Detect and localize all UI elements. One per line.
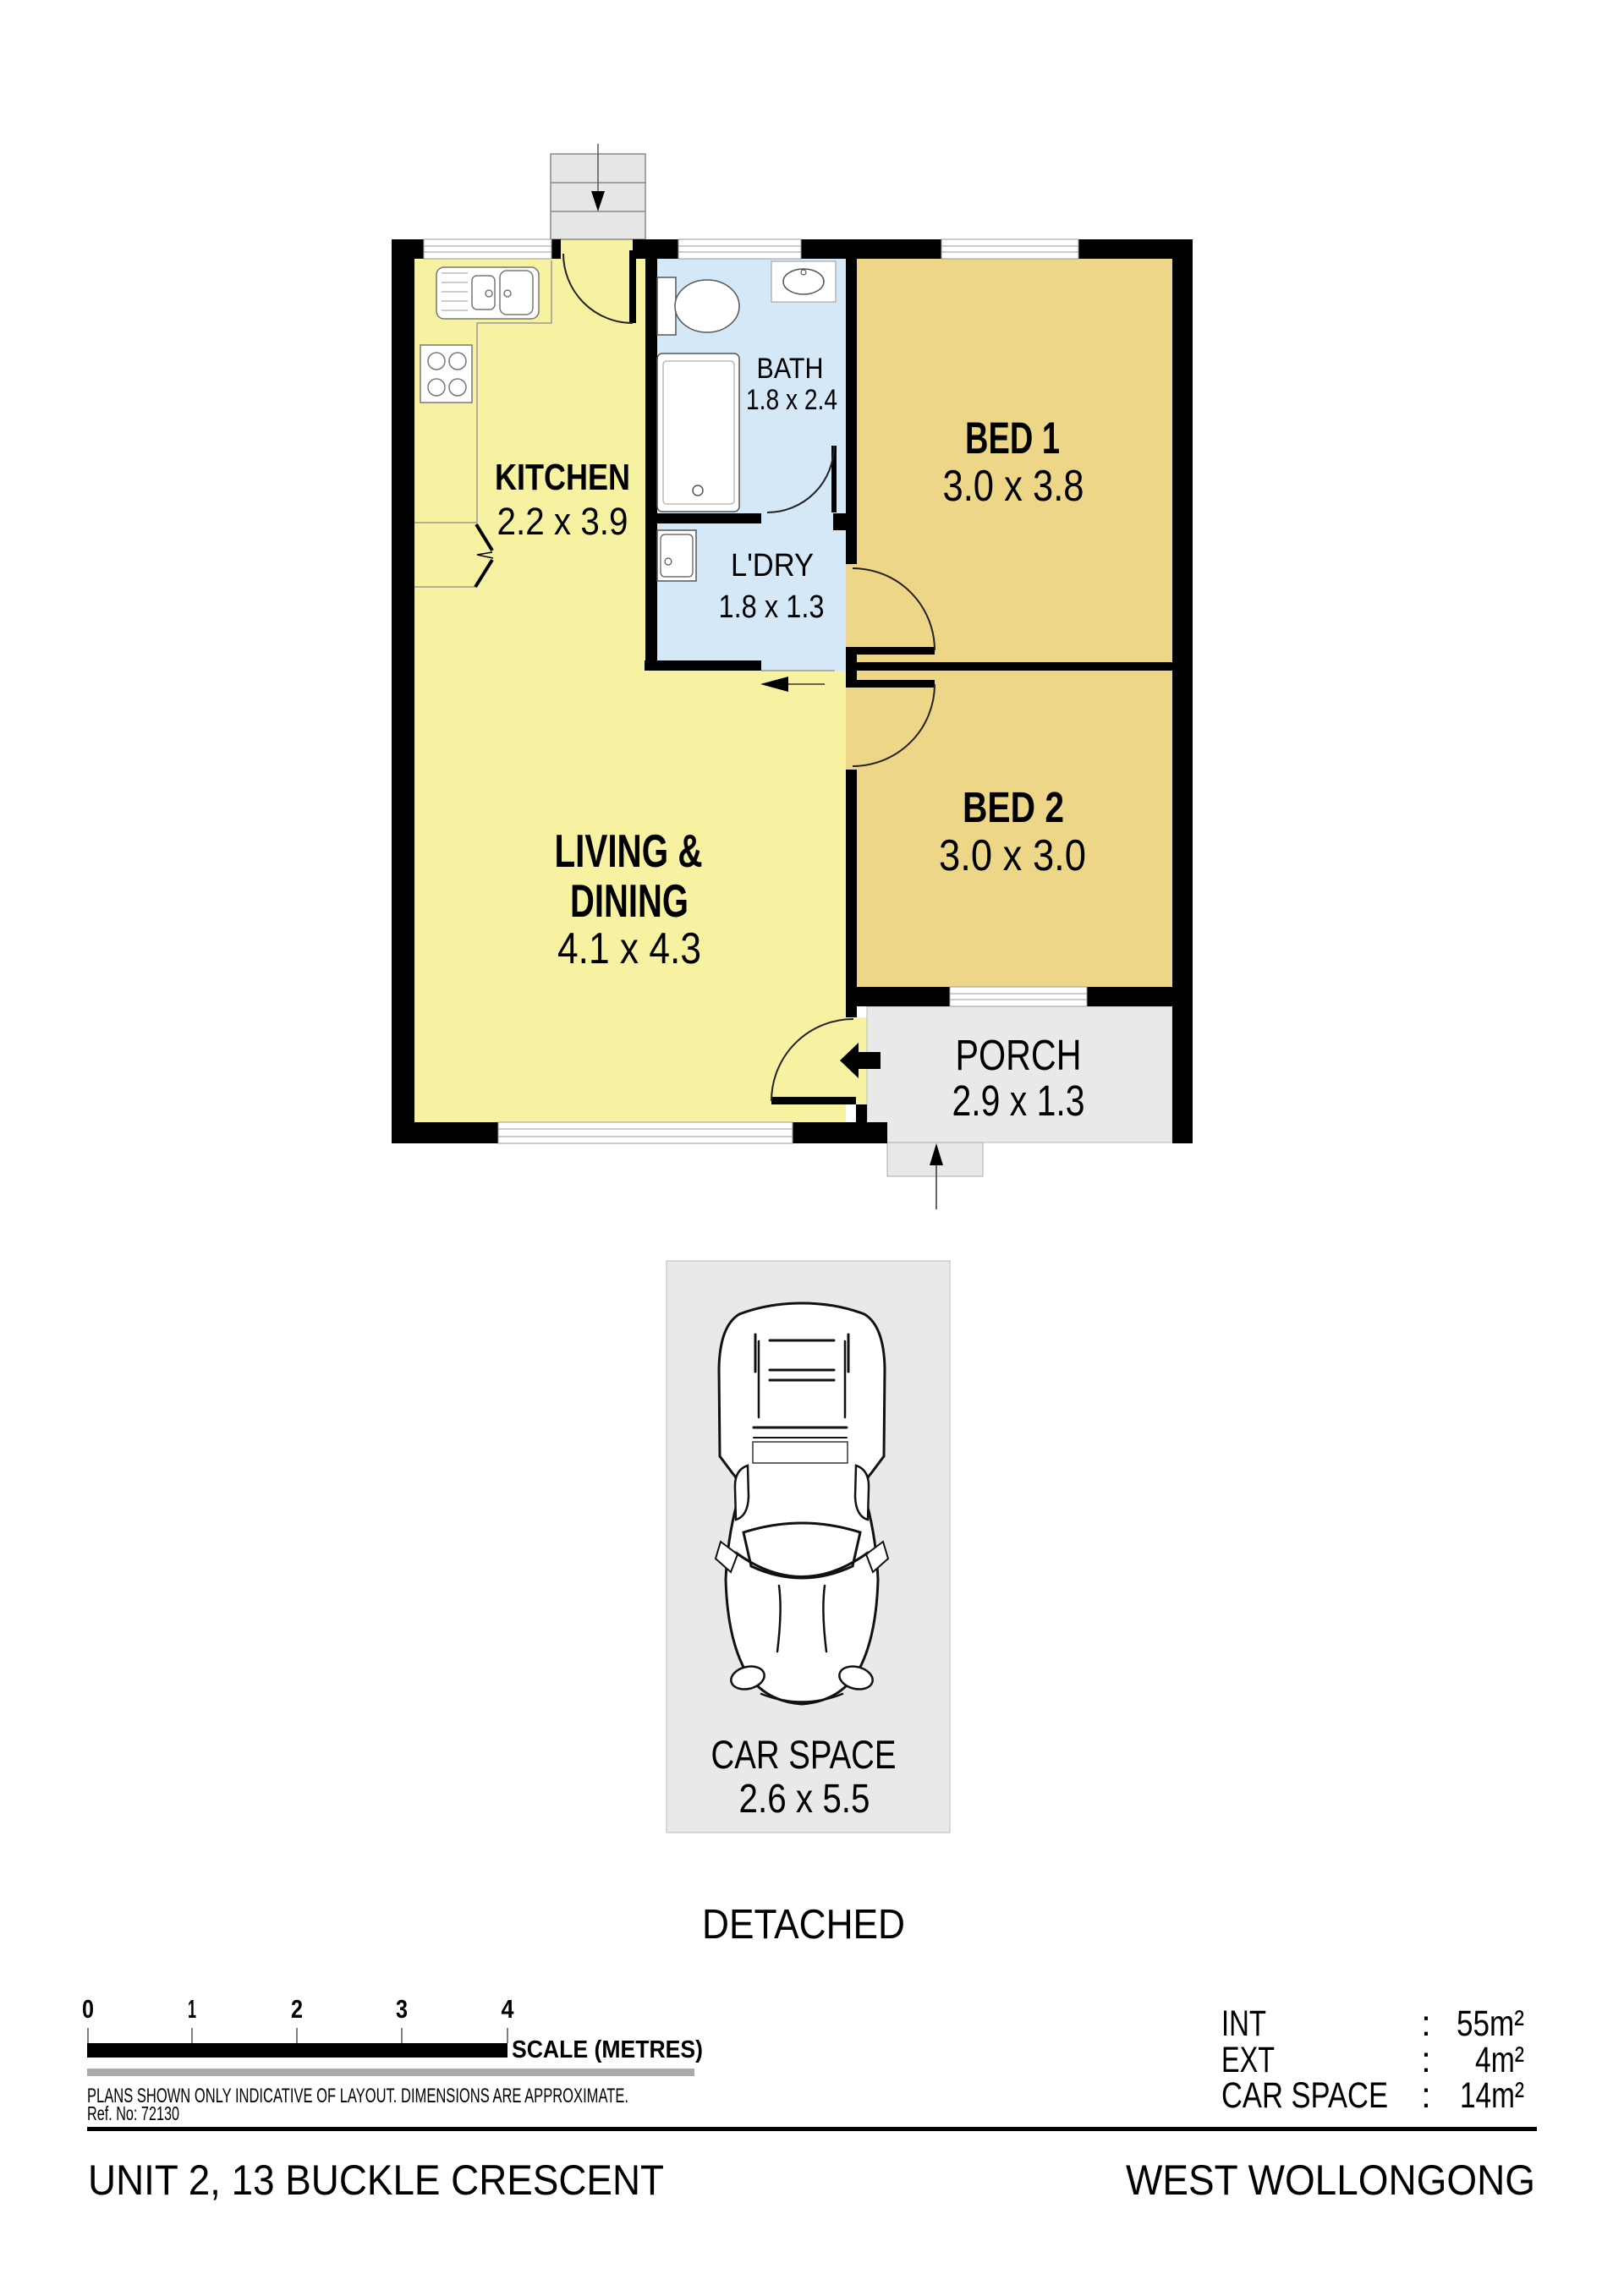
svg-text:1: 1 <box>188 1994 196 2024</box>
svg-text:4.1 x 4.3: 4.1 x 4.3 <box>557 924 701 973</box>
svg-text:LIVING &: LIVING & <box>555 825 703 877</box>
svg-text:WEST WOLLONGONG: WEST WOLLONGONG <box>1126 2156 1535 2204</box>
svg-text:BED 2: BED 2 <box>963 783 1064 831</box>
svg-text:2.9 x 1.3: 2.9 x 1.3 <box>952 1077 1085 1125</box>
svg-text::: : <box>1421 2040 1431 2080</box>
svg-text:2.6 x 5.5: 2.6 x 5.5 <box>739 1777 870 1822</box>
svg-text:1.8 x 2.4: 1.8 x 2.4 <box>746 384 837 416</box>
svg-text:CAR SPACE: CAR SPACE <box>1221 2075 1388 2116</box>
svg-text:3.0 x 3.8: 3.0 x 3.8 <box>943 462 1084 511</box>
svg-text:3: 3 <box>396 1994 408 2024</box>
svg-text:2: 2 <box>291 1994 303 2024</box>
svg-text:Ref. No: 72130: Ref. No: 72130 <box>87 2102 179 2124</box>
svg-text:INT: INT <box>1221 2003 1266 2044</box>
svg-text:CAR SPACE: CAR SPACE <box>711 1732 897 1777</box>
svg-text:SCALE (METRES): SCALE (METRES) <box>512 2036 703 2063</box>
svg-text:1.8 x 1.3: 1.8 x 1.3 <box>719 589 825 625</box>
svg-text:DINING: DINING <box>570 874 689 927</box>
svg-text:14m²: 14m² <box>1460 2075 1524 2116</box>
svg-text:4: 4 <box>502 1994 515 2024</box>
svg-text:3.0 x 3.0: 3.0 x 3.0 <box>939 831 1086 880</box>
svg-text:L'DRY: L'DRY <box>731 548 814 584</box>
svg-text::: : <box>1421 2003 1431 2044</box>
svg-text:55m²: 55m² <box>1457 2003 1524 2044</box>
svg-text:EXT: EXT <box>1221 2040 1275 2080</box>
svg-text::: : <box>1421 2075 1431 2116</box>
svg-text:BED 1: BED 1 <box>965 414 1060 463</box>
svg-text:2.2 x 3.9: 2.2 x 3.9 <box>497 500 628 543</box>
svg-text:BATH: BATH <box>757 353 824 385</box>
svg-text:DETACHED: DETACHED <box>702 1902 905 1948</box>
svg-text:KITCHEN: KITCHEN <box>495 457 630 498</box>
svg-text:4m²: 4m² <box>1475 2040 1524 2080</box>
svg-text:PORCH: PORCH <box>956 1031 1082 1079</box>
svg-text:0: 0 <box>82 1994 94 2024</box>
svg-text:UNIT 2, 13 BUCKLE CRESCENT: UNIT 2, 13 BUCKLE CRESCENT <box>88 2156 664 2204</box>
